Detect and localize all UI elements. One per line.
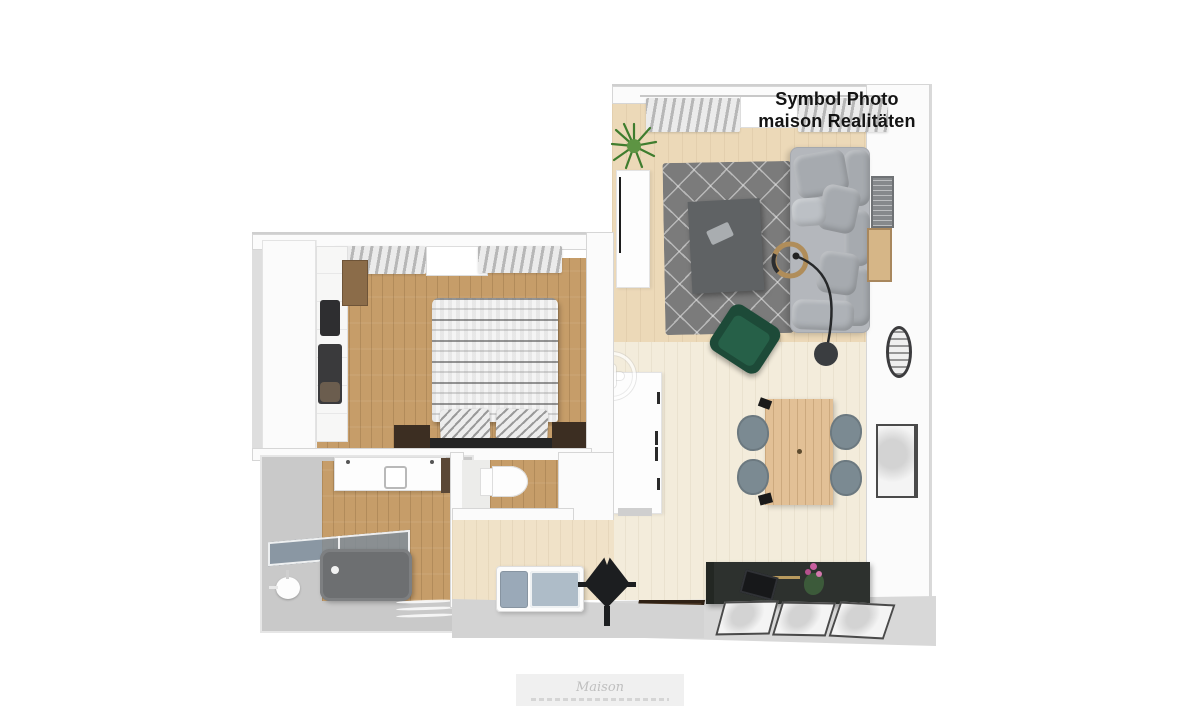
- storage-box: [342, 260, 368, 306]
- living-curtain-left: [646, 98, 740, 132]
- radiator: [871, 176, 894, 228]
- cabinet-base-strip: [618, 508, 652, 516]
- leaning-picture: [715, 601, 778, 636]
- bath-mat: [396, 598, 456, 622]
- wall-mirror: [886, 326, 912, 378]
- cabinet-handle: [657, 392, 660, 404]
- mat-stripe: [396, 606, 456, 611]
- plant-leaves: [804, 573, 824, 595]
- nightstand: [552, 422, 590, 448]
- tv-sideboard: [706, 562, 870, 604]
- bedroom-curtain-right: [478, 246, 562, 273]
- dining-table: [765, 399, 833, 505]
- mat-stripe: [396, 613, 456, 618]
- caption-line-2: maison Realitäten: [752, 110, 922, 132]
- bathtub-drain: [331, 566, 339, 574]
- flower-plant: [800, 563, 828, 599]
- caption-line-1: Symbol Photo: [752, 88, 922, 110]
- footer-brand-text: Maison: [576, 680, 624, 695]
- bed-duvet: [432, 298, 558, 422]
- floorplan-canvas: Symbol Photo maison Realitäten Maison: [0, 0, 1200, 716]
- bench-cushion: [500, 571, 528, 608]
- plant-bloom: [805, 569, 811, 575]
- bed-pillow: [439, 408, 490, 442]
- bathtub: [320, 549, 412, 601]
- basin-spout: [269, 586, 278, 589]
- clothes-item: [320, 382, 340, 402]
- toilet-bowl: [492, 466, 528, 497]
- round-basin: [276, 577, 300, 599]
- clothes-stack: [318, 344, 342, 404]
- wardrobe: [262, 240, 317, 454]
- clothes-stack: [320, 300, 340, 336]
- symbol-photo-caption: Symbol Photo maison Realitäten: [752, 88, 922, 132]
- kitchen-unit-edge: [619, 177, 621, 253]
- sofa-pillow: [791, 197, 827, 227]
- bed-pillow: [495, 408, 548, 442]
- faucet-dot: [430, 460, 434, 464]
- bench-cushion: [530, 571, 580, 608]
- basin-spout: [286, 570, 289, 579]
- leaning-picture: [829, 602, 896, 640]
- arc-floor-lamp: [756, 230, 876, 380]
- cabinet-handle: [655, 447, 658, 461]
- leaning-picture: [772, 602, 836, 637]
- footer-fineprint-line: [531, 698, 669, 701]
- faucet-dot: [346, 460, 350, 464]
- potted-plant: [610, 122, 658, 170]
- cabinet-handle: [657, 478, 660, 490]
- plant-bloom: [810, 563, 817, 570]
- wall-picture: [876, 424, 918, 498]
- cabinet-handle: [655, 431, 658, 445]
- coat-stand: [578, 552, 636, 626]
- bedroom-outer-edge: [252, 232, 262, 460]
- footer-watermark: Maison: [516, 674, 684, 706]
- mat-stripe: [396, 599, 456, 604]
- wall-shelf: [867, 228, 892, 282]
- vanity-sink: [384, 466, 407, 489]
- plant-bloom: [816, 571, 822, 577]
- table-knot: [797, 449, 802, 454]
- coffee-table: [688, 198, 765, 294]
- kitchen-unit-upper: [616, 170, 650, 288]
